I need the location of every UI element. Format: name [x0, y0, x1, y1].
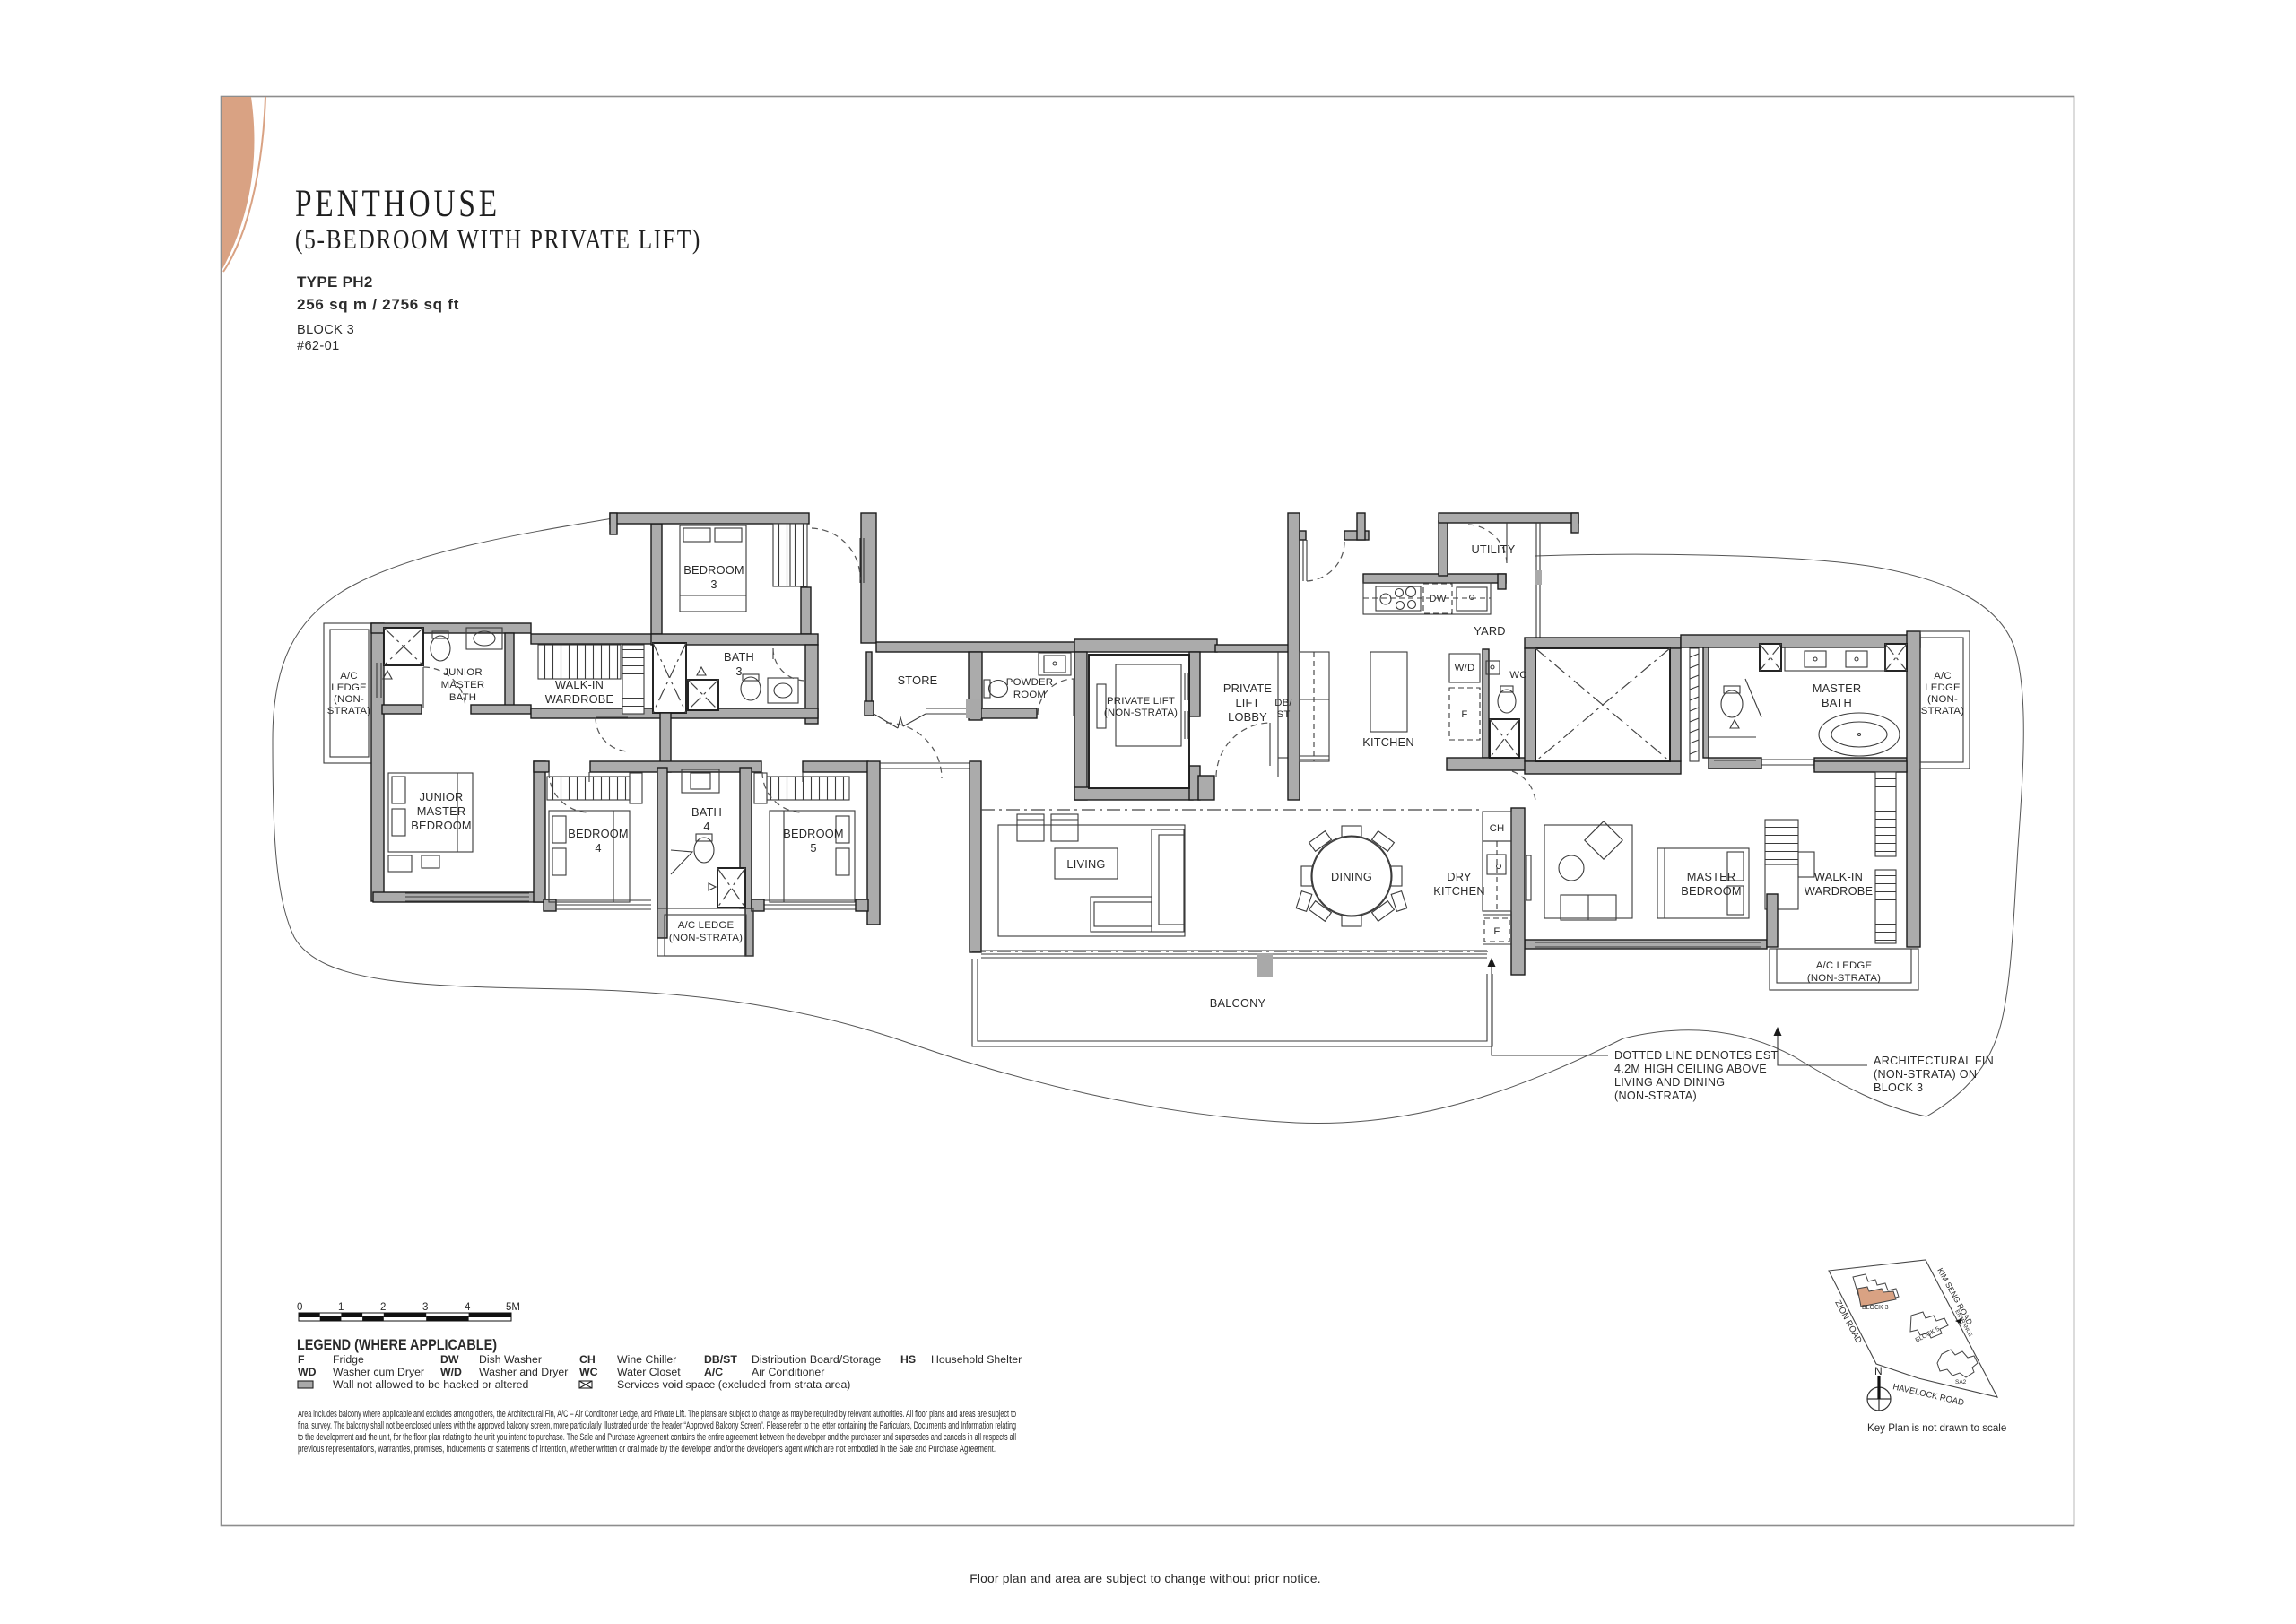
- svg-text:Washer cum Dryer: Washer cum Dryer: [333, 1366, 424, 1378]
- svg-text:A/C: A/C: [1934, 671, 1952, 682]
- svg-text:WALK-IN: WALK-IN: [555, 678, 604, 691]
- svg-text:JUNIOR: JUNIOR: [443, 667, 483, 678]
- svg-text:F: F: [298, 1353, 305, 1366]
- svg-text:LEDGE: LEDGE: [1925, 682, 1961, 693]
- svg-text:POWDER: POWDER: [1006, 677, 1053, 688]
- svg-text:3: 3: [422, 1302, 428, 1313]
- svg-text:STORE: STORE: [898, 673, 938, 687]
- svg-text:LIVING AND DINING: LIVING AND DINING: [1614, 1076, 1725, 1089]
- svg-text:DW: DW: [1429, 594, 1446, 604]
- svg-text:PRIVATE: PRIVATE: [1223, 682, 1272, 695]
- svg-text:CH: CH: [579, 1353, 596, 1366]
- svg-text:ROOM: ROOM: [1013, 690, 1046, 700]
- svg-text:PENTHOUSE: PENTHOUSE: [295, 183, 500, 225]
- svg-text:Floor plan and area are subjec: Floor plan and area are subject to chang…: [970, 1572, 1320, 1585]
- svg-text:WARDROBE: WARDROBE: [545, 692, 614, 706]
- svg-text:2: 2: [380, 1302, 386, 1313]
- svg-text:F: F: [1493, 926, 1500, 937]
- svg-text:Fridge: Fridge: [333, 1353, 364, 1366]
- svg-text:Household Shelter: Household Shelter: [931, 1353, 1022, 1366]
- svg-text:(NON-: (NON-: [334, 694, 364, 705]
- svg-text:LEDGE: LEDGE: [331, 682, 367, 693]
- svg-text:DINING: DINING: [1331, 870, 1372, 883]
- svg-text:previous representations, warr: previous representations, warranties, pr…: [298, 1444, 996, 1455]
- svg-text:LOBBY: LOBBY: [1228, 710, 1267, 724]
- svg-text:A/C LEDGE: A/C LEDGE: [678, 920, 735, 931]
- svg-text:ST: ST: [1277, 709, 1291, 720]
- svg-text:5: 5: [810, 841, 816, 855]
- svg-text:BEDROOM: BEDROOM: [783, 827, 844, 840]
- svg-text:BATH: BATH: [449, 692, 476, 703]
- svg-text:BEDROOM: BEDROOM: [411, 819, 472, 832]
- svg-text:3: 3: [710, 578, 717, 591]
- svg-text:KITCHEN: KITCHEN: [1433, 884, 1485, 898]
- svg-text:LIFT: LIFT: [1235, 696, 1259, 709]
- svg-text:BATH: BATH: [691, 805, 722, 819]
- svg-text:256 sq m / 2756 sq ft: 256 sq m / 2756 sq ft: [297, 296, 459, 313]
- svg-text:Services void space (excluded: Services void space (excluded from strat…: [617, 1378, 850, 1391]
- svg-text:5M: 5M: [506, 1302, 520, 1313]
- svg-text:0: 0: [297, 1302, 302, 1313]
- svg-text:BEDROOM: BEDROOM: [1681, 884, 1742, 898]
- svg-text:BATH: BATH: [724, 650, 754, 664]
- svg-text:A/C: A/C: [704, 1366, 723, 1378]
- svg-text:(NON-STRATA): (NON-STRATA): [669, 933, 743, 943]
- svg-text:final survey. The balcony shal: final survey. The balcony shall not be e…: [298, 1420, 1016, 1431]
- svg-text:DB/ST: DB/ST: [704, 1353, 737, 1366]
- svg-text:UTILITY: UTILITY: [1471, 543, 1515, 556]
- svg-text:HS: HS: [900, 1353, 916, 1366]
- svg-text:WC: WC: [579, 1366, 598, 1378]
- svg-text:BLOCK 3: BLOCK 3: [1874, 1081, 1923, 1094]
- svg-text:MASTER: MASTER: [417, 804, 466, 818]
- svg-text:JUNIOR: JUNIOR: [420, 790, 464, 803]
- svg-text:Area includes balcony where ap: Area includes balcony where applicable a…: [298, 1409, 1016, 1420]
- svg-text:4: 4: [465, 1302, 471, 1313]
- svg-text:A/C: A/C: [340, 671, 358, 682]
- svg-text:(NON-: (NON-: [1927, 694, 1958, 705]
- svg-text:LIVING: LIVING: [1066, 857, 1105, 871]
- svg-text:#62-01: #62-01: [297, 339, 340, 353]
- svg-text:N: N: [1874, 1365, 1883, 1377]
- svg-text:F: F: [1461, 709, 1467, 720]
- svg-text:STRATA): STRATA): [1921, 706, 1964, 716]
- svg-text:(5-BEDROOM WITH PRIVATE LIFT): (5-BEDROOM WITH PRIVATE LIFT): [295, 223, 701, 255]
- svg-text:Air Conditioner: Air Conditioner: [752, 1366, 824, 1378]
- svg-text:W/D: W/D: [440, 1366, 462, 1378]
- svg-text:Dish Washer: Dish Washer: [479, 1353, 542, 1366]
- svg-text:(NON-STRATA) ON: (NON-STRATA) ON: [1874, 1068, 1977, 1081]
- svg-text:Key Plan is not drawn to scale: Key Plan is not drawn to scale: [1867, 1422, 2006, 1434]
- svg-text:WD: WD: [298, 1366, 317, 1378]
- svg-text:Wine Chiller: Wine Chiller: [617, 1353, 676, 1366]
- svg-text:STRATA): STRATA): [327, 706, 370, 716]
- svg-text:SA2: SA2: [1955, 1379, 1967, 1385]
- svg-text:KITCHEN: KITCHEN: [1362, 735, 1414, 749]
- svg-text:LEGEND (WHERE APPLICABLE): LEGEND (WHERE APPLICABLE): [297, 1336, 497, 1353]
- svg-text:Distribution Board/Storage: Distribution Board/Storage: [752, 1353, 881, 1366]
- svg-text:4.2M HIGH CEILING ABOVE: 4.2M HIGH CEILING ABOVE: [1614, 1063, 1767, 1075]
- svg-text:CH: CH: [1490, 823, 1505, 834]
- svg-text:YARD: YARD: [1474, 624, 1505, 638]
- svg-text:DOTTED LINE DENOTES EST: DOTTED LINE DENOTES EST: [1614, 1049, 1779, 1062]
- svg-text:BEDROOM: BEDROOM: [683, 563, 744, 577]
- svg-text:A/C LEDGE: A/C LEDGE: [1816, 960, 1873, 971]
- svg-text:Water Closet: Water Closet: [617, 1366, 681, 1378]
- svg-text:BLOCK 3: BLOCK 3: [1862, 1305, 1889, 1311]
- svg-text:PRIVATE LIFT: PRIVATE LIFT: [1107, 696, 1175, 707]
- svg-text:(NON-STRATA): (NON-STRATA): [1614, 1090, 1697, 1102]
- svg-text:ARCHITECTURAL FIN: ARCHITECTURAL FIN: [1874, 1055, 1994, 1067]
- svg-text:1: 1: [338, 1302, 344, 1313]
- svg-text:MASTER: MASTER: [1813, 682, 1862, 695]
- svg-text:W/D: W/D: [1455, 663, 1475, 673]
- svg-text:4: 4: [703, 820, 709, 833]
- svg-text:DRY: DRY: [1447, 870, 1472, 883]
- svg-text:DW: DW: [440, 1353, 459, 1366]
- svg-text:TYPE PH2: TYPE PH2: [297, 274, 373, 291]
- svg-text:BLOCK 3: BLOCK 3: [297, 323, 354, 337]
- svg-text:Wall not allowed to be hacked: Wall not allowed to be hacked or altered: [333, 1378, 528, 1391]
- svg-text:3: 3: [735, 664, 742, 678]
- svg-text:WC: WC: [1509, 670, 1526, 681]
- svg-text:WARDROBE: WARDROBE: [1805, 884, 1874, 898]
- svg-text:WALK-IN: WALK-IN: [1814, 870, 1863, 883]
- svg-text:4: 4: [595, 841, 601, 855]
- svg-text:Washer and Dryer: Washer and Dryer: [479, 1366, 568, 1378]
- svg-text:BALCONY: BALCONY: [1210, 996, 1266, 1010]
- svg-text:to the development and the uni: to the development and the unit, for the…: [298, 1432, 1016, 1443]
- svg-text:BATH: BATH: [1822, 696, 1852, 709]
- svg-text:MASTER: MASTER: [441, 680, 485, 690]
- svg-text:(NON-STRATA): (NON-STRATA): [1807, 973, 1881, 984]
- svg-text:(NON-STRATA): (NON-STRATA): [1104, 708, 1178, 718]
- svg-text:DB/: DB/: [1274, 698, 1292, 708]
- svg-text:BEDROOM: BEDROOM: [568, 827, 629, 840]
- svg-text:MASTER: MASTER: [1687, 870, 1736, 883]
